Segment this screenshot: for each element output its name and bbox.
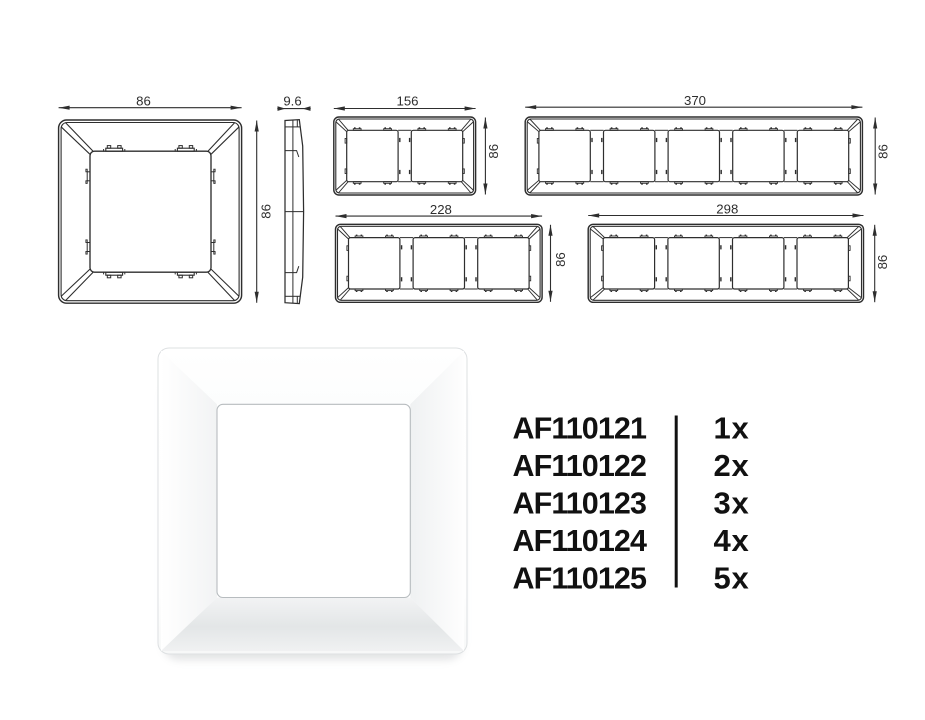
svg-text:AF110125: AF110125 bbox=[513, 561, 647, 595]
svg-text:370: 370 bbox=[684, 93, 706, 108]
svg-text:86: 86 bbox=[486, 144, 501, 159]
svg-text:9.6: 9.6 bbox=[283, 94, 301, 109]
svg-text:2x: 2x bbox=[714, 448, 750, 483]
svg-text:AF110124: AF110124 bbox=[513, 524, 647, 558]
svg-text:1x: 1x bbox=[714, 411, 750, 446]
svg-text:5x: 5x bbox=[714, 560, 750, 595]
svg-text:86: 86 bbox=[875, 255, 890, 270]
svg-text:AF110123: AF110123 bbox=[513, 486, 647, 520]
svg-text:86: 86 bbox=[553, 252, 568, 267]
svg-text:298: 298 bbox=[716, 201, 738, 216]
svg-text:3x: 3x bbox=[714, 485, 750, 520]
svg-text:4x: 4x bbox=[714, 523, 750, 558]
svg-text:86: 86 bbox=[876, 144, 891, 159]
svg-text:AF110122: AF110122 bbox=[513, 449, 647, 483]
svg-text:156: 156 bbox=[396, 94, 418, 109]
svg-text:86: 86 bbox=[136, 93, 151, 108]
svg-text:228: 228 bbox=[430, 202, 452, 217]
svg-text:86: 86 bbox=[259, 204, 274, 219]
svg-text:AF110121: AF110121 bbox=[513, 412, 647, 446]
